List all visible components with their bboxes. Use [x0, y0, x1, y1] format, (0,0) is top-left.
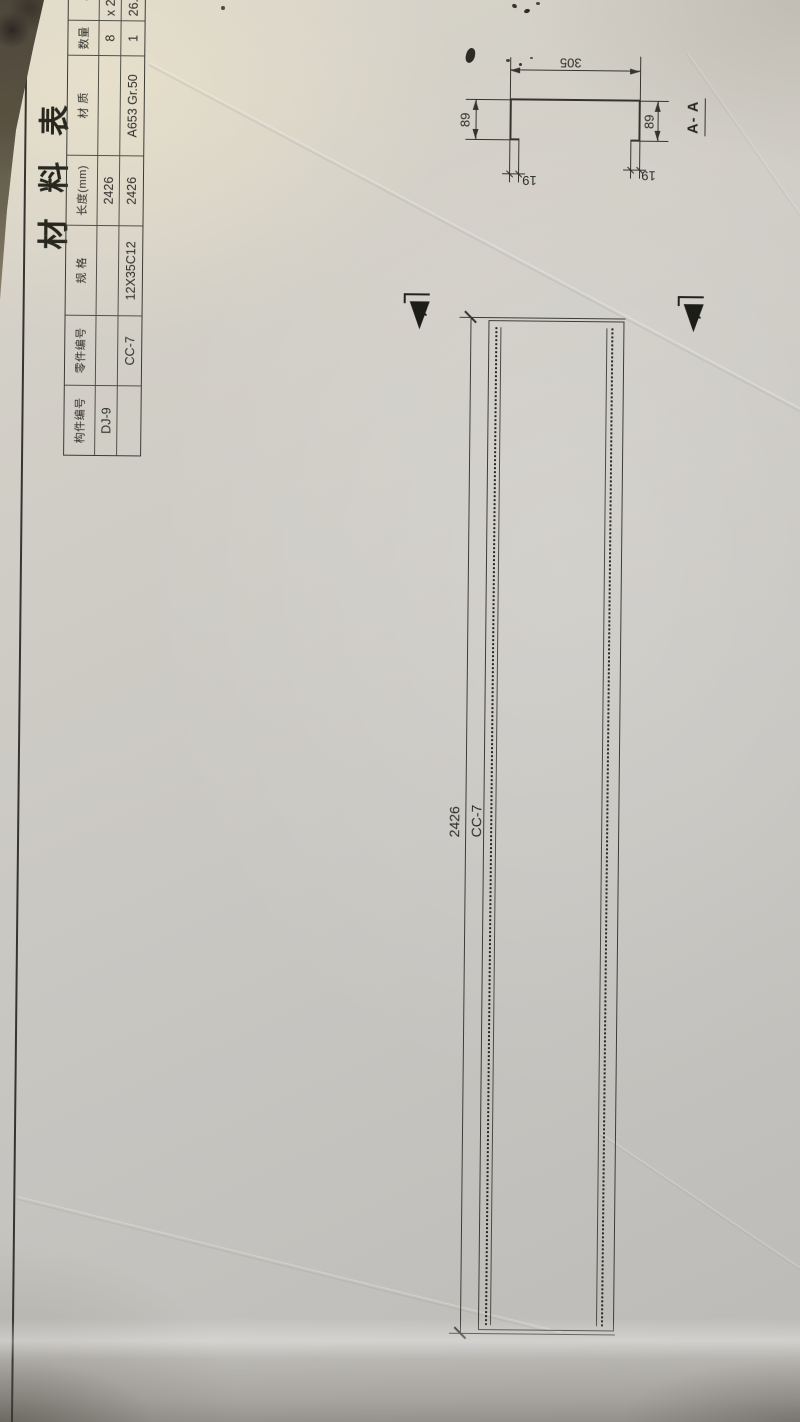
- header-cell: 构件编号: [64, 385, 96, 455]
- member-length-dim: 2426: [446, 777, 463, 867]
- table-cell: 8: [99, 20, 121, 55]
- dim-arrow-icon: [630, 69, 640, 75]
- cut-marker-foot: [678, 297, 680, 306]
- section-lip-dim-bottom: 19: [636, 170, 660, 183]
- dim-extension-line: [630, 141, 631, 179]
- cut-marker-stem: [678, 296, 704, 298]
- table-cell: 1: [121, 20, 144, 55]
- section-cut-letter: A: [414, 305, 431, 316]
- table-cell: A653 Gr.50: [120, 55, 144, 155]
- section-cut-marker-top: A: [403, 283, 445, 329]
- drawing-sheet: 材 料 表 构件编号 零件编号 规 格 长度(mm) 材 质 数量 单 重 DJ…: [0, 0, 800, 1422]
- table-cell: x 26.69: [100, 0, 123, 20]
- table-cell: CC-7: [118, 315, 142, 385]
- section-view-label: A- A: [685, 98, 705, 136]
- dim-extension-line: [509, 57, 511, 99]
- dim-arrow-icon: [473, 100, 479, 110]
- dim-arrow-icon: [472, 129, 478, 139]
- dim-arrow-icon: [510, 68, 520, 74]
- header-cell: 材 质: [67, 55, 99, 155]
- header-cell: 单 重: [69, 0, 101, 20]
- speck: [530, 57, 533, 59]
- header-cell: 长度(mm): [66, 155, 98, 225]
- table-cell: [96, 315, 119, 385]
- table-cell: 2426: [97, 155, 120, 225]
- speck: [536, 2, 540, 5]
- section-web-line: [510, 99, 641, 102]
- table-cell: 12X35C12: [119, 225, 143, 315]
- header-cell: 数量: [68, 20, 99, 55]
- section-web-dim: 305: [551, 55, 591, 70]
- dim-extension-line: [465, 139, 509, 141]
- section-flange-dim-bottom: 89: [641, 107, 656, 137]
- table-cell: [98, 55, 121, 155]
- table-cell: [117, 385, 141, 455]
- table-cell: 2426: [119, 155, 143, 225]
- member-part-label: CC-7: [468, 776, 485, 866]
- materials-table: 构件编号 零件编号 规 格 长度(mm) 材 质 数量 单 重 DJ-9 242…: [63, 0, 146, 456]
- dim-extension-line-right: [460, 316, 626, 319]
- header-cell: 规 格: [66, 225, 98, 315]
- sheet-border-line: [11, 0, 29, 1422]
- section-lip-dim-top: 19: [517, 175, 541, 188]
- section-flange-top-line: [509, 99, 511, 140]
- table-cell: [97, 225, 120, 315]
- section-cut-marker-bottom: A: [677, 286, 719, 332]
- cut-marker-stem: [404, 294, 430, 296]
- table-cell: 26.6: [122, 0, 146, 20]
- header-cell: 零件编号: [65, 315, 97, 385]
- section-flange-dim-top: 89: [457, 105, 472, 135]
- speck: [519, 63, 522, 66]
- table-cell: DJ-9: [95, 385, 118, 455]
- paper-bottom-fold-shadow: [0, 1318, 800, 1422]
- speck: [506, 59, 510, 62]
- dim-extension-line: [639, 57, 641, 101]
- cut-marker-foot: [404, 294, 406, 303]
- photo-of-drawing: 材 料 表 构件编号 零件编号 规 格 长度(mm) 材 质 数量 单 重 DJ…: [0, 0, 800, 1422]
- section-cut-letter: A: [688, 308, 705, 319]
- speck: [221, 6, 225, 10]
